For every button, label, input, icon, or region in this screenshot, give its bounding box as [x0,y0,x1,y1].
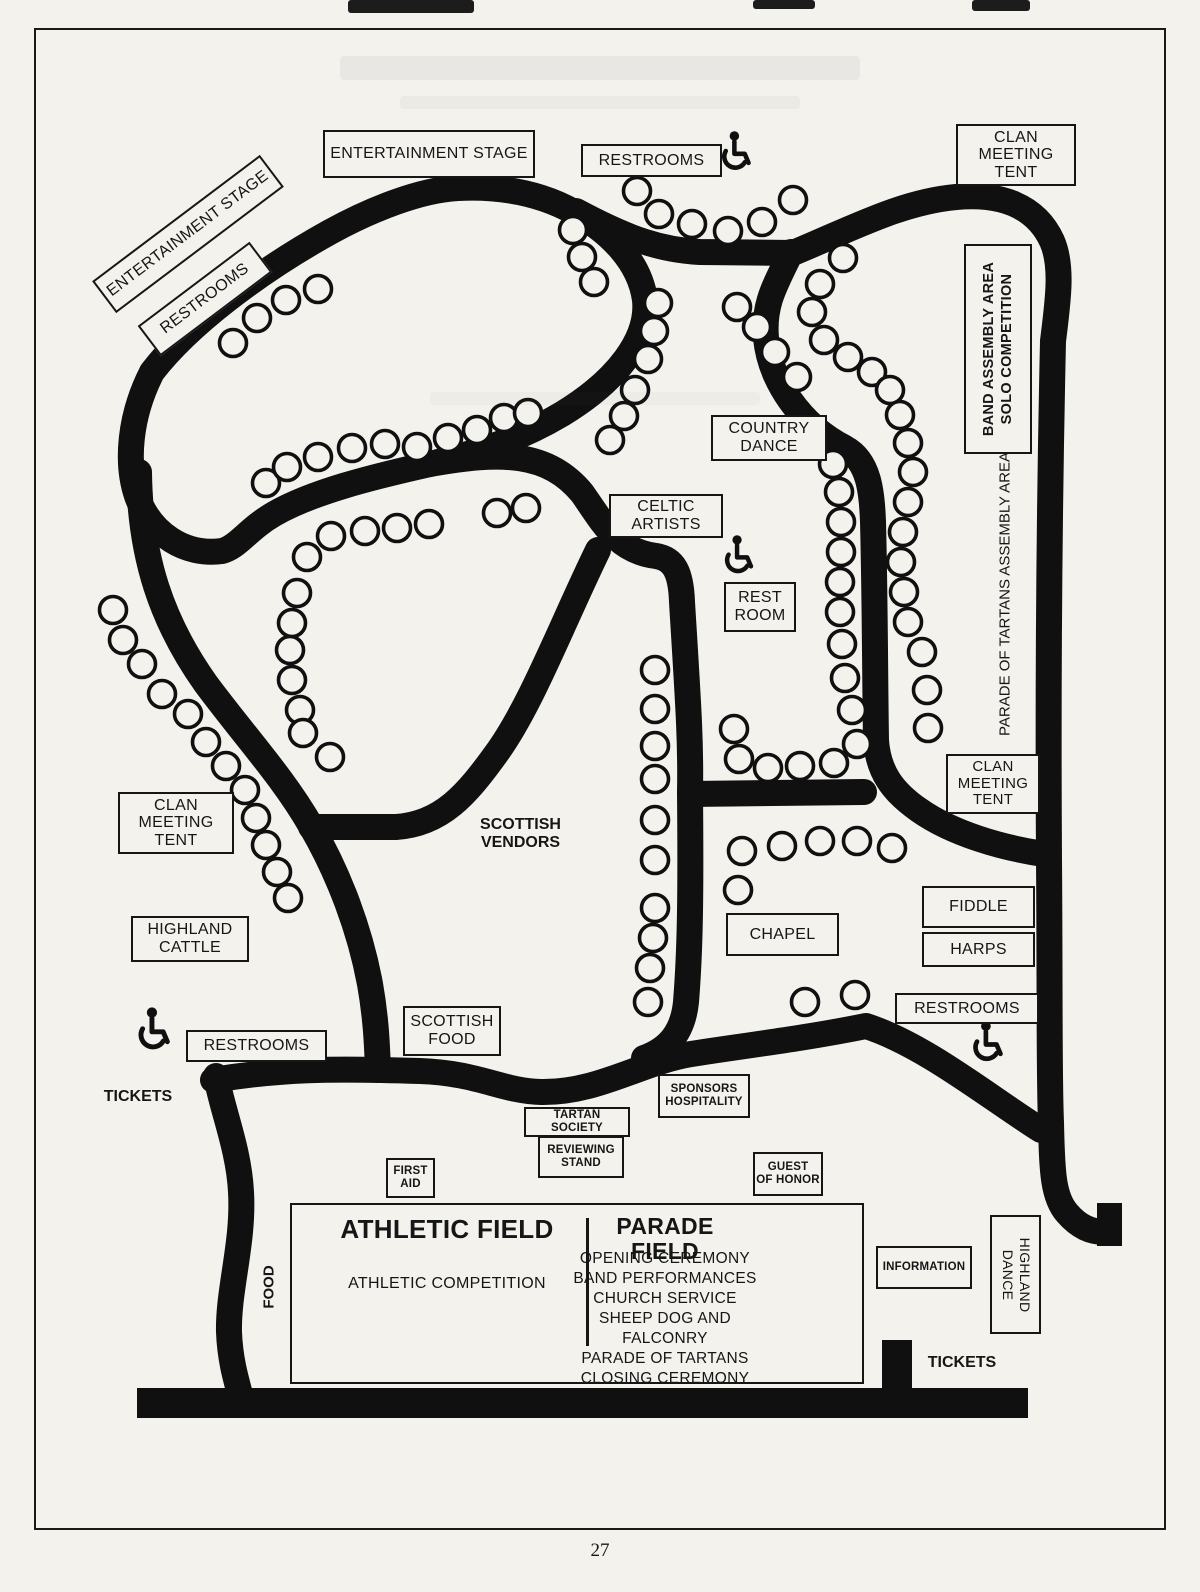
booth-circle [900,459,927,486]
booth-circle [835,344,862,371]
scottish-vendors-label: SCOTTISH VENDORS [443,812,598,856]
clan-meeting-tent-left-box: CLAN MEETING TENT [118,792,234,854]
parade-event: BAND PERFORMANCES [560,1269,770,1289]
booth-circle [787,753,814,780]
booth-circle [721,716,748,743]
booth-circle [642,807,669,834]
booth-circle [839,697,866,724]
booth-circle [149,681,176,708]
booth-circle [642,733,669,760]
booth-circle [352,518,379,545]
booth-circle [305,276,332,303]
parade-field-events: OPENING CEREMONY BAND PERFORMANCES CHURC… [560,1249,770,1389]
booth-circle [193,729,220,756]
booth-circle [887,402,914,429]
first-aid-box: FIRST AID [386,1158,435,1198]
booth-circle [416,511,443,538]
entertainment-stage-box: ENTERTAINMENT STAGE [323,130,535,178]
highland-dance-label: HIGHLAND DANCE [999,1221,1033,1328]
booth-circle [769,833,796,860]
booth-circle [484,500,511,527]
booth-circle [829,631,856,658]
parade-event: SHEEP DOG AND FALCONRY [560,1309,770,1349]
booth-circle [755,755,782,782]
fiddle-box: FIDDLE [922,886,1035,928]
booth-circle [253,832,280,859]
booth-circle [642,657,669,684]
booth-circle [807,271,834,298]
booth-circle [581,269,608,296]
road-food-vertical [216,1076,241,1398]
tickets-right-label: TICKETS [920,1352,1004,1374]
food-label: FOOD [252,1246,288,1328]
reviewing-stand-box: REVIEWING STAND [538,1136,624,1178]
booth-circle [275,885,302,912]
booth-circle [725,877,752,904]
booth-circle [780,187,807,214]
booth-circle [641,318,668,345]
booth-circle [895,609,922,636]
booth-circle [175,701,202,728]
booth-circle [294,544,321,571]
booth-circle [435,425,462,452]
booth-circle [807,828,834,855]
sponsors-hospitality-box: SPONSORS HOSPITALITY [658,1074,750,1118]
booth-circle [792,989,819,1016]
clan-meeting-tent-topright-box: CLAN MEETING TENT [956,124,1076,186]
restrooms-top-box: RESTROOMS [581,144,722,177]
booth-circle [826,479,853,506]
booth-circle [744,314,771,341]
information-box: INFORMATION [876,1246,972,1289]
booth-circle [877,377,904,404]
athletic-field-title: ATHLETIC FIELD [317,1215,577,1244]
booth-circle [597,427,624,454]
booth-circle [844,828,871,855]
booth-circle [830,245,857,272]
festival-map-page: ENTERTAINMENT STAGE ENTERTAINMENT STAGE … [0,0,1200,1592]
booth-circle [642,895,669,922]
road-vendors-diagonal [311,550,598,827]
booth-circle [624,178,651,205]
booth-circle [642,847,669,874]
booth-circle [909,639,936,666]
booth-circle [635,346,662,373]
booth-circle [895,430,922,457]
booth-circle [888,549,915,576]
bleed-through-text [430,392,760,405]
booth-circle [220,330,247,357]
band-assembly-area-box: BAND ASSEMBLY AREA SOLO COMPETITION [964,244,1032,454]
booth-circle [879,835,906,862]
wheelchair-icon [976,1021,1001,1058]
parade-event: CLOSING CEREMONY [560,1369,770,1389]
parade-event: OPENING CEREMONY [560,1249,770,1269]
booth-circle [844,731,871,758]
highland-cattle-box: HIGHLAND CATTLE [131,916,249,962]
booth-circle [637,955,664,982]
booth-circle [715,218,742,245]
athletic-competition-label: ATHLETIC COMPETITION [317,1275,577,1293]
clan-meeting-tent-right-box: CLAN MEETING TENT [946,754,1040,814]
booth-circle [895,489,922,516]
wheelchair-icon [724,131,748,167]
booth-circle [213,753,240,780]
booth-circle [762,339,789,366]
booth-circle [384,515,411,542]
tickets-left-label: TICKETS [100,1086,176,1108]
booth-circle [915,715,942,742]
booth-circle [404,434,431,461]
parade-event: PARADE OF TARTANS [560,1349,770,1369]
scan-artifact [753,0,815,9]
road-left-side [139,472,378,1070]
booth-circle [811,327,838,354]
booth-circle [129,651,156,678]
bleed-through-text [400,96,800,109]
booth-circle [244,305,271,332]
booth-circle [827,569,854,596]
booth-circle [646,201,673,228]
harps-box: HARPS [922,932,1035,967]
chapel-box: CHAPEL [726,913,839,956]
booth-circle [569,244,596,271]
booth-circle [828,539,855,566]
parade-of-tartans-assembly-label: PARADE OF TARTANS ASSEMBLY AREA [986,448,1026,740]
booth-circle [277,637,304,664]
booth-circle [635,989,662,1016]
booth-circle [726,746,753,773]
booth-circle [284,580,311,607]
booth-circle [640,925,667,952]
booth-circle [784,364,811,391]
booth-circle [513,495,540,522]
booth-circle [464,417,491,444]
restrooms-left-box: RESTROOMS [186,1030,327,1062]
booth-circle [645,290,672,317]
wheelchair-icon [141,1007,167,1047]
page-number: 27 [555,1540,645,1562]
booth-circle [832,665,859,692]
booth-circle [290,720,317,747]
booth-circle [828,509,855,536]
scan-artifact [972,0,1030,11]
booth-circle [914,677,941,704]
booth-circle [799,299,826,326]
booth-circle [273,287,300,314]
booth-circle [339,435,366,462]
booth-circle [891,579,918,606]
booth-circle [890,519,917,546]
booth-circle [821,750,848,777]
bleed-through-text [340,56,860,80]
scottish-food-box: SCOTTISH FOOD [403,1006,501,1056]
booth-circle [279,610,306,637]
rest-room-box: REST ROOM [724,582,796,632]
scan-artifact [348,0,474,13]
booth-circle [642,696,669,723]
booth-circle [264,859,291,886]
booth-circle [232,777,259,804]
booth-circle [749,209,776,236]
celtic-artists-box: CELTIC ARTISTS [609,494,723,538]
booth-circle [100,597,127,624]
booth-circle [243,805,270,832]
booth-circle [317,744,344,771]
booth-circle [729,838,756,865]
restrooms-right-box: RESTROOMS [895,993,1039,1024]
parade-event: CHURCH SERVICE [560,1289,770,1309]
booth-circle [274,454,301,481]
booth-circle [560,217,587,244]
wheelchair-icon [727,535,751,571]
booth-circle [679,211,706,238]
booth-circle [318,523,345,550]
athletic-parade-field-box: ATHLETIC FIELD ATHLETIC COMPETITION PARA… [290,1203,864,1384]
road-end-cap [1097,1203,1122,1246]
road-mid-horizontal [690,792,864,794]
booth-circle [642,766,669,793]
highland-dance-box: HIGHLAND DANCE [990,1215,1041,1334]
booth-circle [827,599,854,626]
booth-circle [305,444,332,471]
booth-circle [279,667,306,694]
tartan-society-box: TARTAN SOCIETY [524,1107,630,1137]
band-assembly-area-label: BAND ASSEMBLY AREA SOLO COMPETITION [980,250,1016,448]
booth-circle [372,431,399,458]
booth-circle [842,982,869,1009]
guest-of-honor-box: GUEST OF HONOR [753,1152,823,1196]
booth-circle [110,627,137,654]
country-dance-box: COUNTRY DANCE [711,415,827,461]
